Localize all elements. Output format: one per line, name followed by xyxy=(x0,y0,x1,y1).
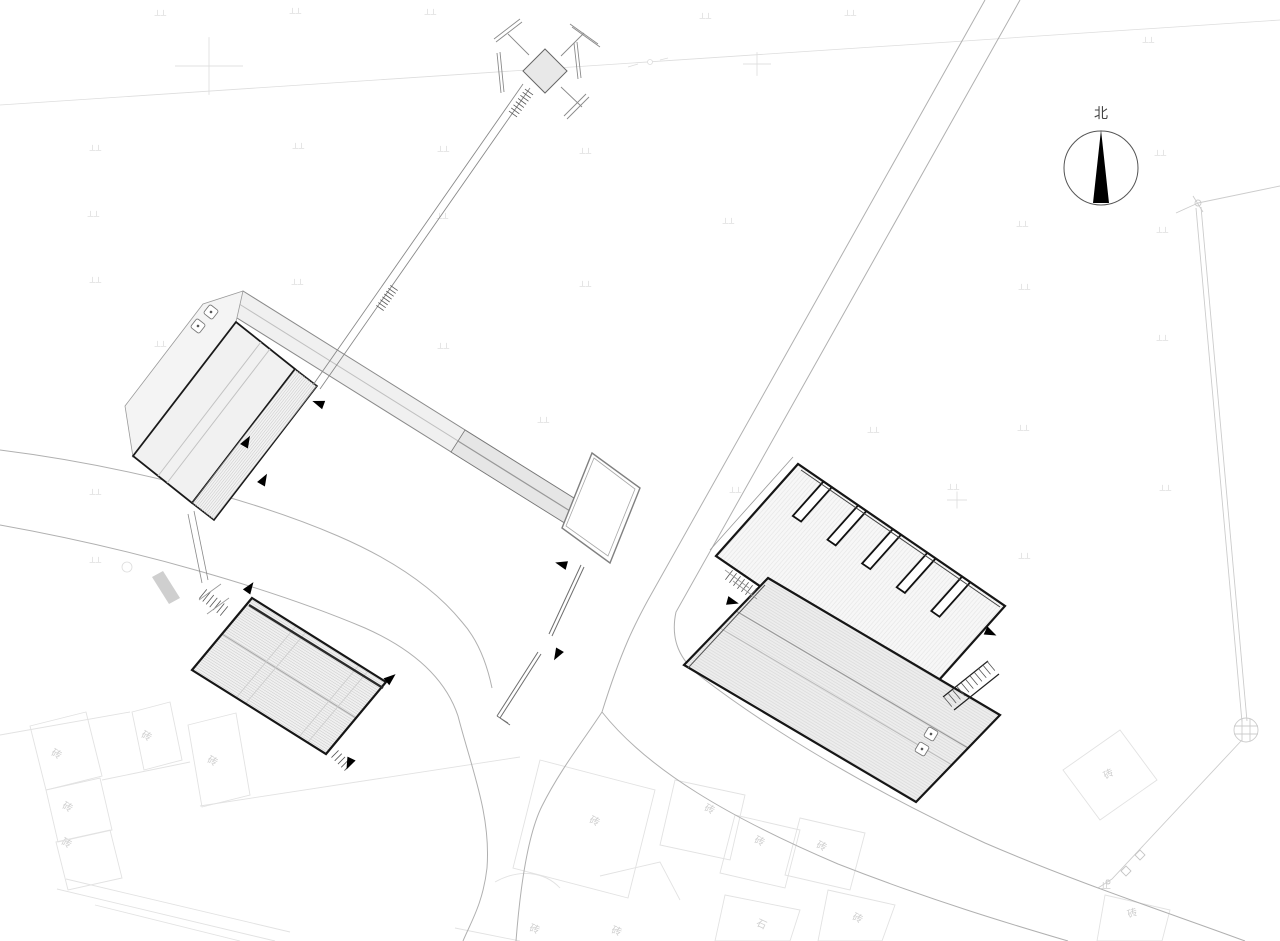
courtyard-square-room xyxy=(562,453,640,563)
entrance-arrow-icon xyxy=(726,596,740,608)
west-road-south-edge xyxy=(0,525,488,941)
site-plan: ⊥⊥⊥⊥⊥⊥⊥⊥⊥⊥⊥⊥⊥⊥⊥⊥⊥⊥⊥⊥⊥⊥⊥⊥⊥⊥⊥⊥⊥⊥⊥⊥⊥⊥⊥⊥⊥⊥⊥⊥… xyxy=(0,0,1280,941)
stair-rung xyxy=(388,288,395,293)
entrance-arrow-icon xyxy=(554,558,568,570)
courtyard-wall xyxy=(497,565,584,725)
stair-rung xyxy=(966,679,974,688)
stair-rung xyxy=(987,661,995,670)
stair-rung xyxy=(378,303,385,308)
existing-buildings-faint xyxy=(0,702,1170,941)
ramp xyxy=(152,571,180,604)
utility-pole-and-fence xyxy=(1098,186,1280,888)
entrance-arrow-icon xyxy=(550,648,564,663)
building-upper-left xyxy=(122,322,317,604)
main-road-west-edge xyxy=(602,0,1068,941)
north-arrow-icon: 北 xyxy=(1064,106,1138,205)
stair-rung xyxy=(979,669,987,678)
stair-rung xyxy=(382,297,389,302)
stair-rung xyxy=(961,683,969,692)
entrance-arrow-icon xyxy=(243,580,257,595)
boundary-line xyxy=(0,20,1280,105)
stair-rung xyxy=(331,750,338,757)
stair-rung xyxy=(380,300,387,305)
stair-rung xyxy=(390,285,397,290)
stair-rung xyxy=(974,672,982,681)
site-plan-drawing: 北 xyxy=(0,0,1280,941)
north-label: 北 xyxy=(1094,106,1108,122)
stair-rung xyxy=(335,754,342,761)
south-road-east-edge xyxy=(516,712,602,941)
main-road-east-edge xyxy=(674,0,1245,941)
walkway-from-tower xyxy=(313,84,530,389)
stair-rung xyxy=(376,305,383,310)
stair-rung xyxy=(338,757,345,764)
stair-rung xyxy=(384,294,391,299)
entrance-arrow-icon xyxy=(311,397,325,410)
building-lower-left xyxy=(192,598,386,754)
well-icon xyxy=(1234,718,1258,742)
stair-rung xyxy=(983,665,991,674)
survey-crosses xyxy=(175,37,967,508)
entrance-arrow-icon xyxy=(257,472,271,487)
watchtower xyxy=(494,19,600,119)
stair-rung xyxy=(386,291,393,296)
stair-rung xyxy=(970,676,978,685)
stair-rails xyxy=(199,570,757,614)
